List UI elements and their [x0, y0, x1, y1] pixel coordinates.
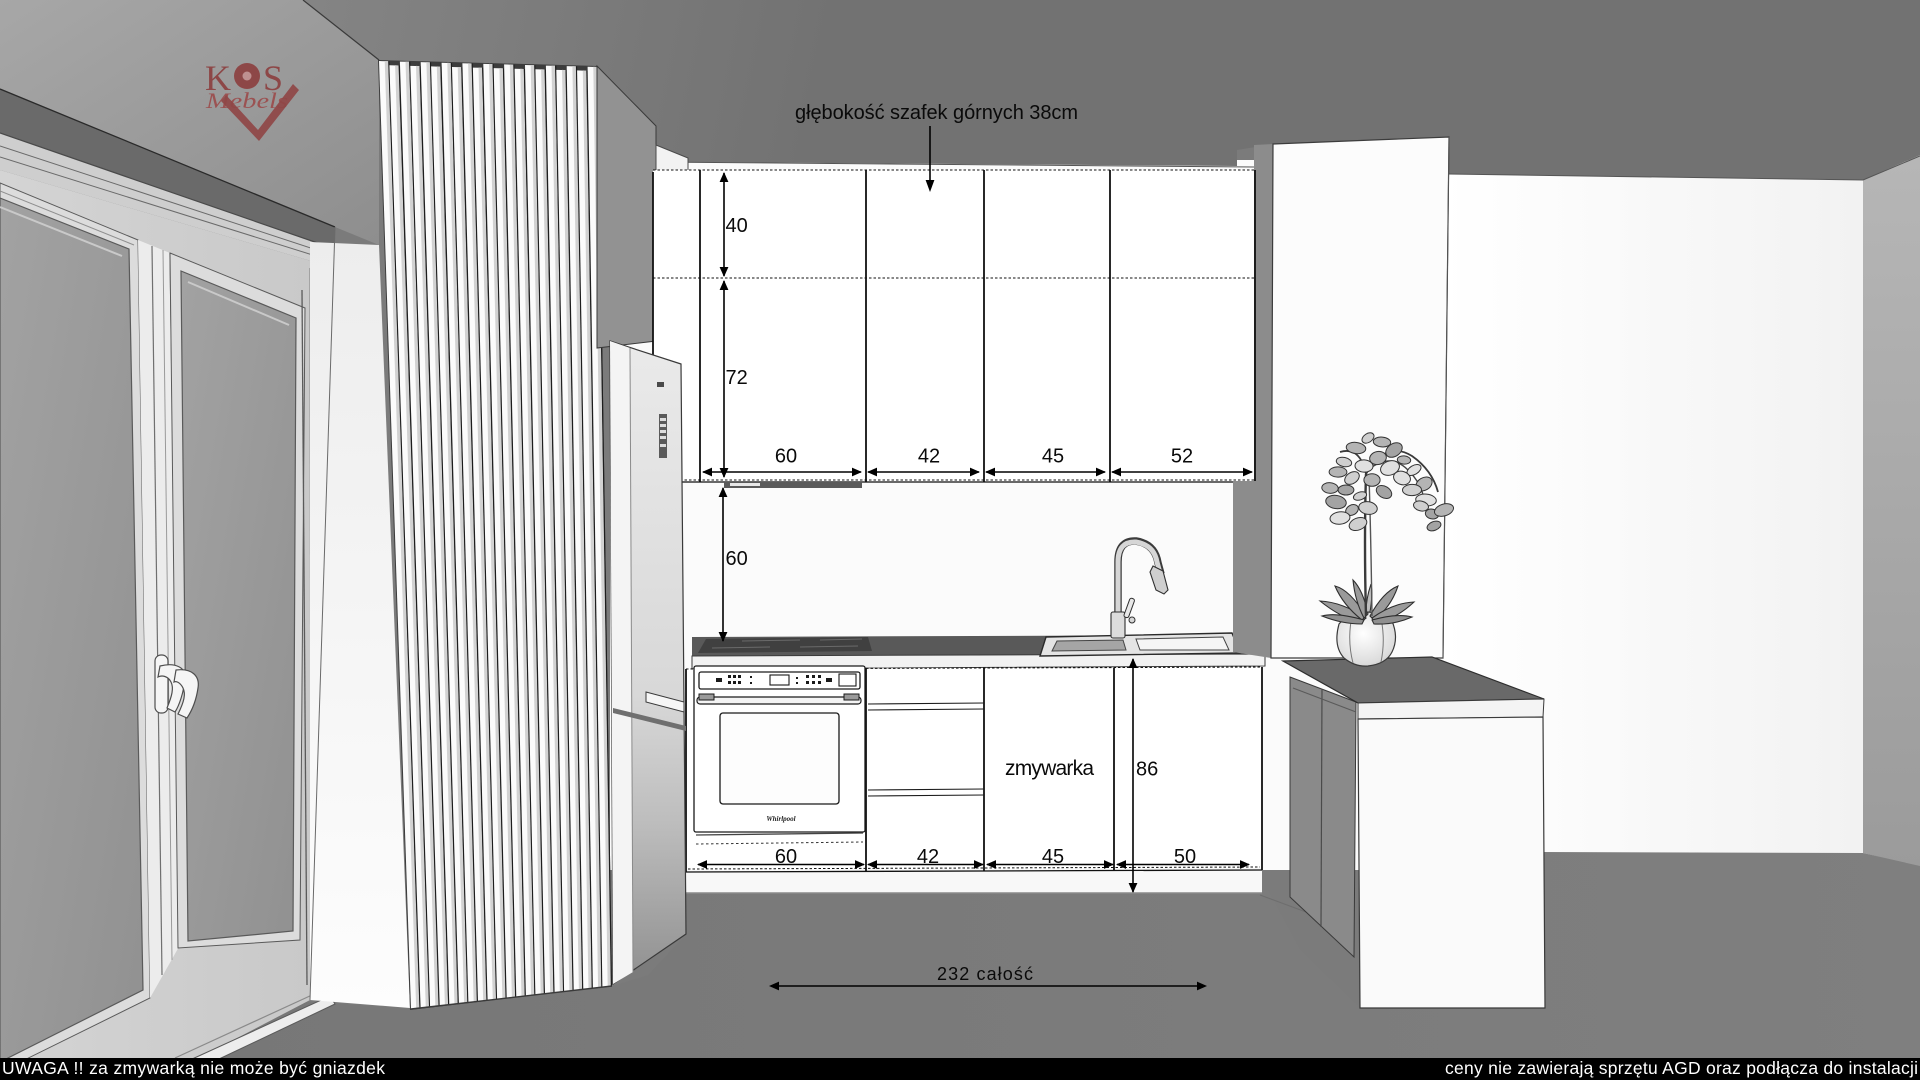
svg-text:40: 40 [726, 215, 748, 237]
svg-text:72: 72 [726, 367, 748, 389]
svg-text:86: 86 [1136, 759, 1158, 781]
svg-text:60: 60 [726, 548, 748, 570]
svg-text:60: 60 [775, 846, 797, 868]
svg-text:52: 52 [1171, 446, 1193, 468]
svg-text:zmywarka: zmywarka [1005, 757, 1094, 780]
svg-text:50: 50 [1174, 846, 1196, 868]
svg-text:232 całość: 232 całość [937, 964, 1033, 984]
svg-text:45: 45 [1042, 846, 1064, 868]
svg-text:UWAGA !! za zmywarką nie może: UWAGA !! za zmywarką nie może być gniazd… [2, 1058, 385, 1078]
svg-text:42: 42 [917, 846, 939, 868]
svg-text:60: 60 [775, 446, 797, 468]
svg-text:Whirlpool: Whirlpool [766, 815, 795, 823]
svg-text:45: 45 [1042, 446, 1064, 468]
svg-text:ceny nie zawierają sprzętu AGD: ceny nie zawierają sprzętu AGD oraz podł… [1445, 1058, 1918, 1078]
svg-text:głębokość szafek górnych 38cm: głębokość szafek górnych 38cm [795, 102, 1078, 124]
svg-text:42: 42 [918, 446, 940, 468]
